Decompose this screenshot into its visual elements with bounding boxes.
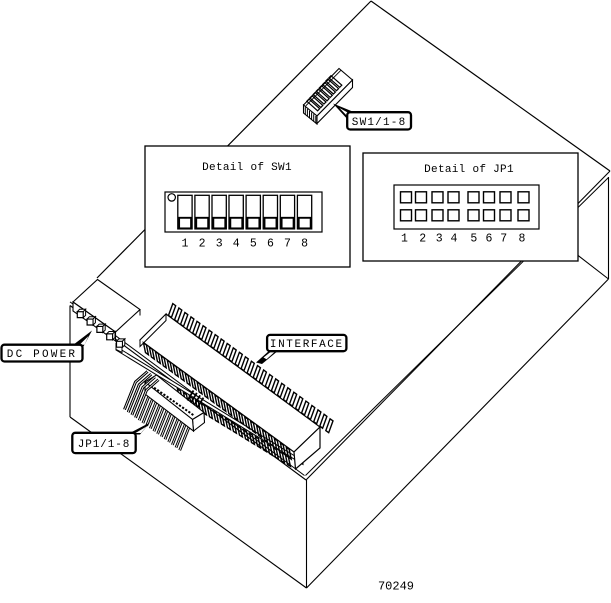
svg-text:2: 2 bbox=[199, 238, 206, 251]
svg-text:7: 7 bbox=[500, 233, 507, 246]
svg-text:3: 3 bbox=[436, 233, 443, 246]
svg-text:8: 8 bbox=[301, 238, 308, 251]
svg-text:4: 4 bbox=[451, 233, 458, 246]
svg-text:JP1/1-8: JP1/1-8 bbox=[78, 439, 131, 451]
svg-text:6: 6 bbox=[267, 238, 274, 251]
svg-text:2: 2 bbox=[419, 233, 426, 246]
svg-text:Detail of SW1: Detail of SW1 bbox=[202, 162, 292, 174]
svg-text:INTERFACE: INTERFACE bbox=[270, 339, 344, 351]
svg-text:8: 8 bbox=[519, 233, 526, 246]
svg-text:3: 3 bbox=[216, 238, 223, 251]
svg-text:5: 5 bbox=[470, 233, 477, 246]
svg-text:6: 6 bbox=[486, 233, 493, 246]
svg-text:SW1/1-8: SW1/1-8 bbox=[352, 117, 407, 129]
svg-text:5: 5 bbox=[250, 238, 257, 251]
svg-text:7: 7 bbox=[284, 238, 291, 251]
svg-text:1: 1 bbox=[182, 238, 189, 251]
svg-text:4: 4 bbox=[233, 238, 240, 251]
svg-text:DC POWER: DC POWER bbox=[7, 349, 77, 361]
svg-text:1: 1 bbox=[401, 233, 408, 246]
svg-text:70249: 70249 bbox=[378, 580, 414, 594]
svg-text:Detail of JP1: Detail of JP1 bbox=[424, 164, 514, 176]
